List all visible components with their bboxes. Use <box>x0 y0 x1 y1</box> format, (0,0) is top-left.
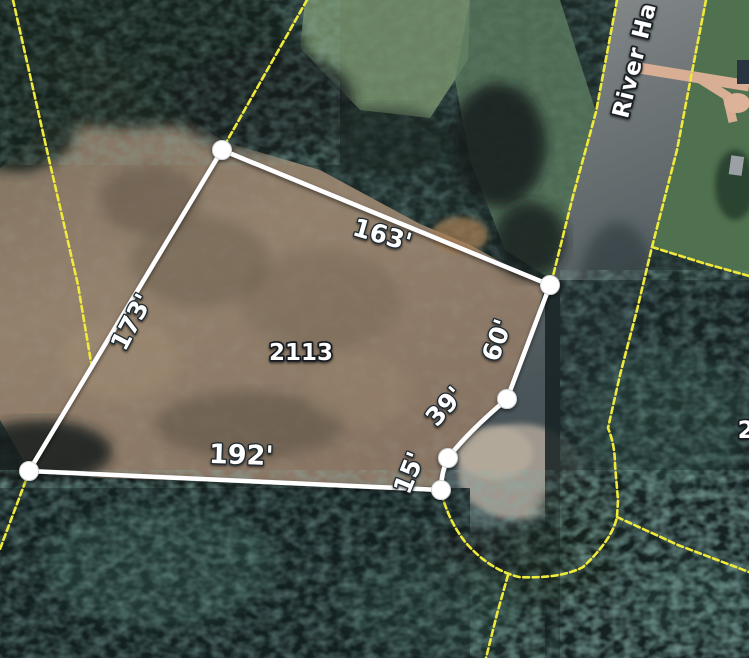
parcel-vertex-handle[interactable] <box>498 390 517 409</box>
structure-roof <box>737 60 749 84</box>
parcel-vertex-handle[interactable] <box>541 276 560 295</box>
parcel-vertex-handle[interactable] <box>439 449 458 468</box>
edge-length-label-bottom: 192' <box>208 439 274 472</box>
satellite-map-view[interactable]: 163' 173' 192' 60' 39' 15' 2113 River Ha… <box>0 0 749 658</box>
parcel-vertex-handle[interactable] <box>20 462 39 481</box>
parcel-vertex-handle[interactable] <box>213 141 232 160</box>
parcel-number-label: 2113 <box>269 340 333 366</box>
parcel-vertex-handle[interactable] <box>432 481 451 500</box>
map-canvas[interactable]: 163' 173' 192' 60' 39' 15' 2113 River Ha… <box>0 0 749 658</box>
neighbor-parcel-number-partial: 2 <box>738 416 749 444</box>
